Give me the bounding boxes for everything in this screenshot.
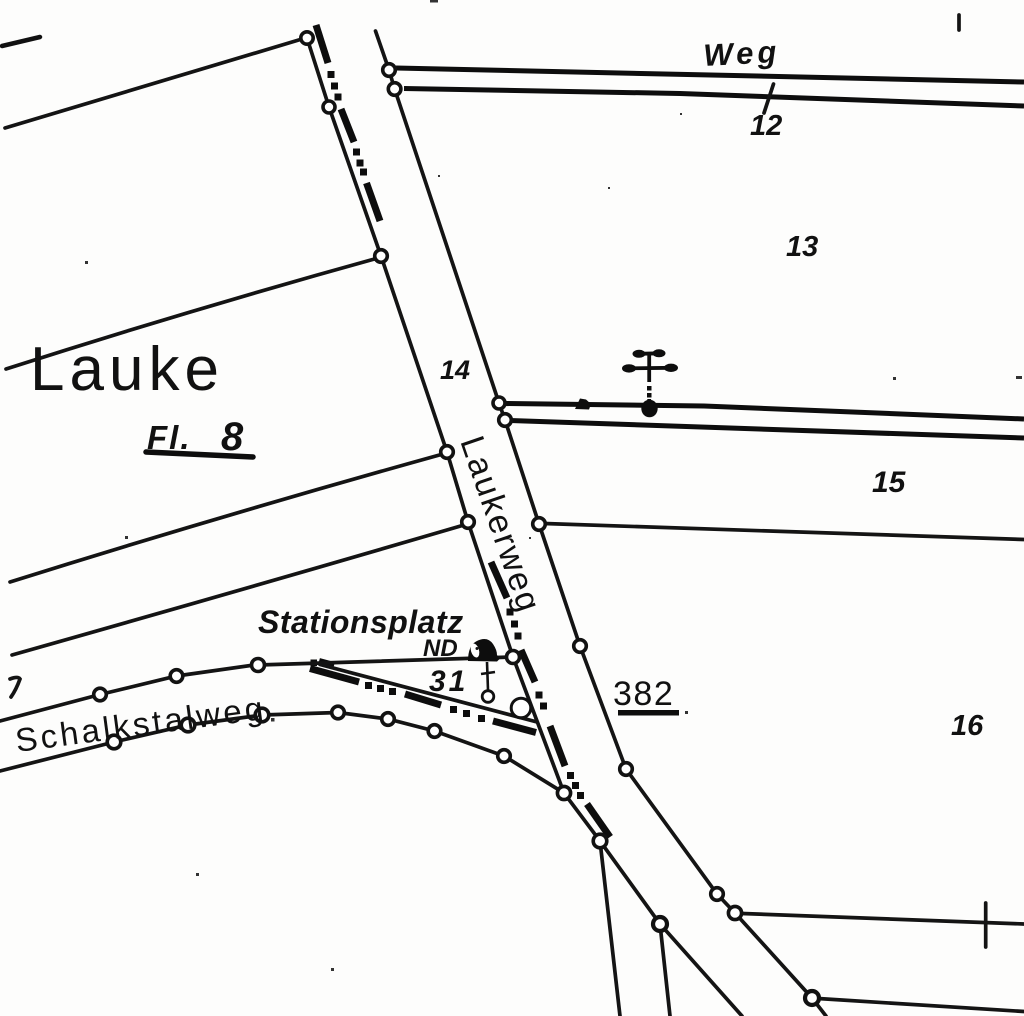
svg-text:Stationsplatz: Stationsplatz (258, 604, 464, 640)
svg-text:15: 15 (872, 466, 907, 499)
svg-text:13: 13 (786, 231, 818, 263)
svg-text:Lauke: Lauke (30, 335, 224, 404)
svg-text:16: 16 (951, 710, 984, 742)
svg-text:31: 31 (429, 665, 468, 698)
svg-text:14: 14 (440, 355, 470, 385)
svg-text:8: 8 (221, 415, 244, 459)
svg-text:12: 12 (750, 110, 782, 142)
svg-text:Weg: Weg (703, 34, 782, 73)
svg-text:382: 382 (613, 675, 674, 713)
